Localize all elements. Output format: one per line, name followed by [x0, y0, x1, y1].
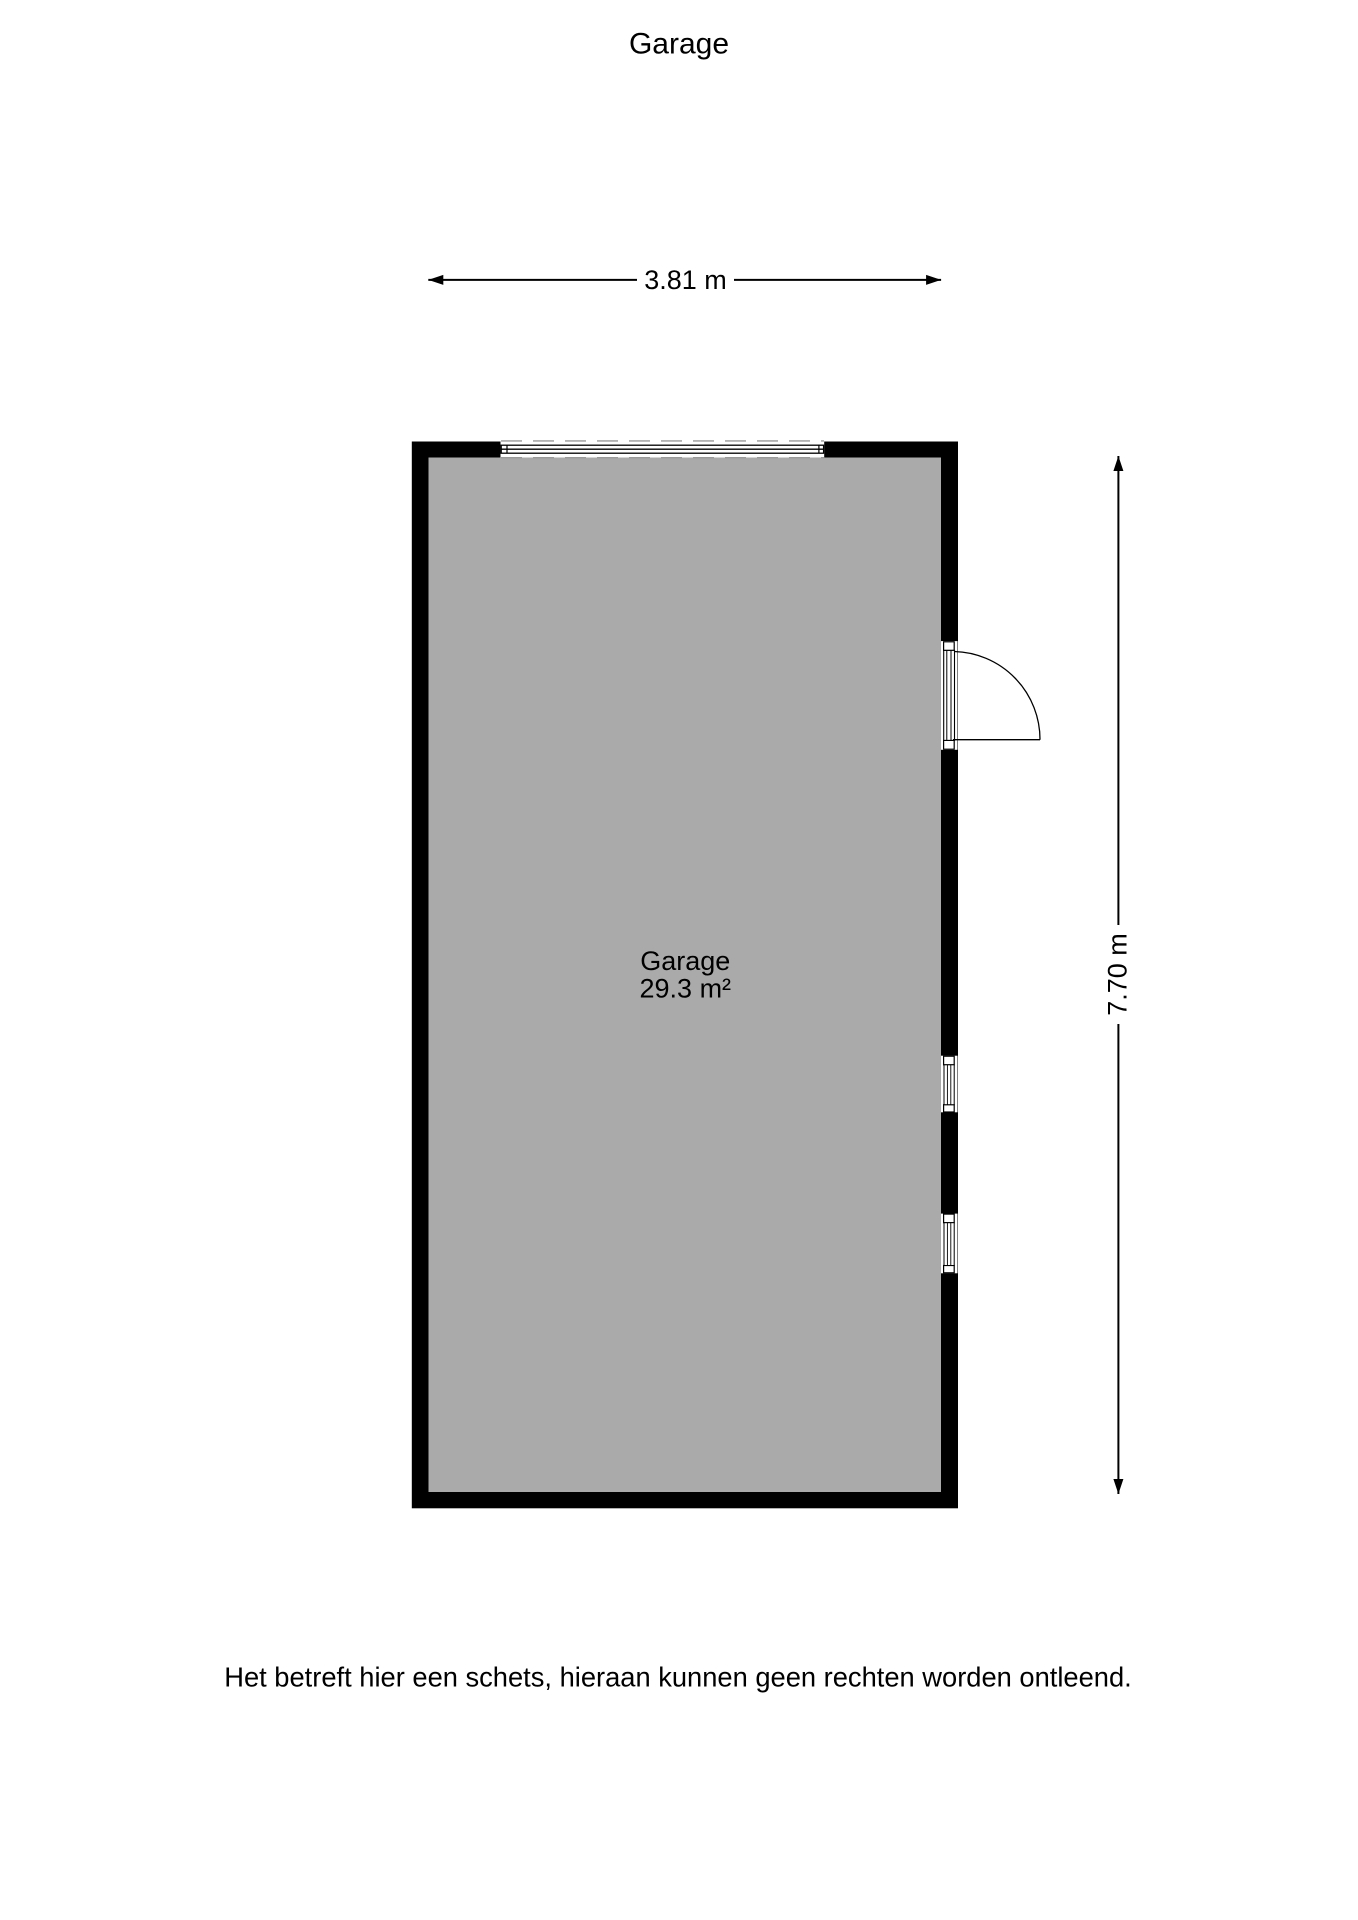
svg-text:Het betreft hier een schets, h: Het betreft hier een schets, hieraan kun…	[224, 1661, 1131, 1692]
svg-text:29.3 m²: 29.3 m²	[640, 974, 732, 1004]
svg-text:3.81 m: 3.81 m	[644, 265, 727, 295]
svg-text:7.70 m: 7.70 m	[1103, 933, 1133, 1016]
svg-text:Garage: Garage	[640, 946, 730, 976]
svg-text:Garage: Garage	[629, 27, 729, 60]
